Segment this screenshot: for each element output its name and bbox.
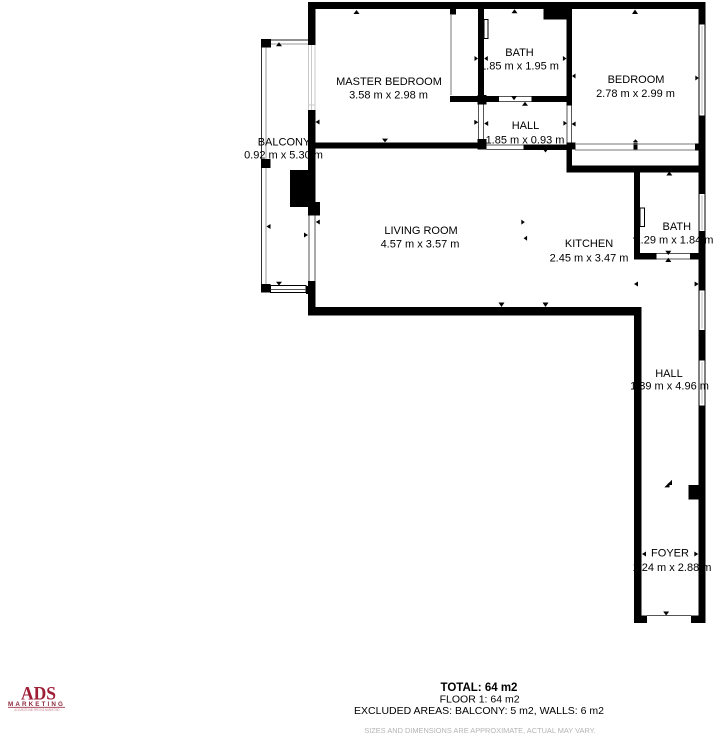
svg-text:BATH: BATH — [505, 47, 534, 59]
svg-text:1.29 m x 1.84 m: 1.29 m x 1.84 m — [635, 235, 714, 247]
svg-text:MASTER BEDROOM: MASTER BEDROOM — [336, 76, 442, 88]
svg-text:TOTAL: 64 m2: TOTAL: 64 m2 — [441, 682, 518, 694]
svg-text:LIVING ROOM: LIVING ROOM — [384, 225, 457, 237]
svg-text:1.85 m x 0.93 m: 1.85 m x 0.93 m — [486, 135, 565, 147]
svg-text:FOYER: FOYER — [651, 548, 689, 560]
svg-text:2.78 m x 2.99 m: 2.78 m x 2.99 m — [596, 88, 675, 100]
svg-text:3.58 m x 2.98 m: 3.58 m x 2.98 m — [349, 90, 428, 102]
svg-text:HALL: HALL — [512, 120, 540, 132]
svg-text:1.85 m x 1.95 m: 1.85 m x 1.95 m — [480, 61, 559, 73]
svg-text:ACCURATE AND PRECISE MARKETING: ACCURATE AND PRECISE MARKETING — [15, 708, 60, 712]
svg-text:HALL: HALL — [655, 368, 683, 380]
svg-text:2.45 m x 3.47 m: 2.45 m x 3.47 m — [550, 253, 629, 265]
svg-text:0.92 m x 5.30 m: 0.92 m x 5.30 m — [244, 150, 323, 162]
svg-text:KITCHEN: KITCHEN — [565, 238, 613, 250]
svg-text:1.24 m x 2.88 m: 1.24 m x 2.88 m — [633, 562, 712, 574]
svg-text:BALCONY: BALCONY — [258, 137, 311, 149]
svg-text:FLOOR 1: 64 m2: FLOOR 1: 64 m2 — [440, 694, 520, 706]
svg-text:BATH: BATH — [663, 221, 692, 233]
svg-text:SIZES AND DIMENSIONS ARE APPRO: SIZES AND DIMENSIONS ARE APPROXIMATE, AC… — [364, 726, 595, 735]
svg-text:1.39 m x 4.96 m: 1.39 m x 4.96 m — [630, 381, 709, 393]
svg-text:BEDROOM: BEDROOM — [608, 74, 665, 86]
svg-text:EXCLUDED AREAS: BALCONY: 5 m2,: EXCLUDED AREAS: BALCONY: 5 m2, WALLS: 6 … — [354, 705, 604, 717]
svg-text:4.57 m x 3.57 m: 4.57 m x 3.57 m — [381, 239, 460, 251]
